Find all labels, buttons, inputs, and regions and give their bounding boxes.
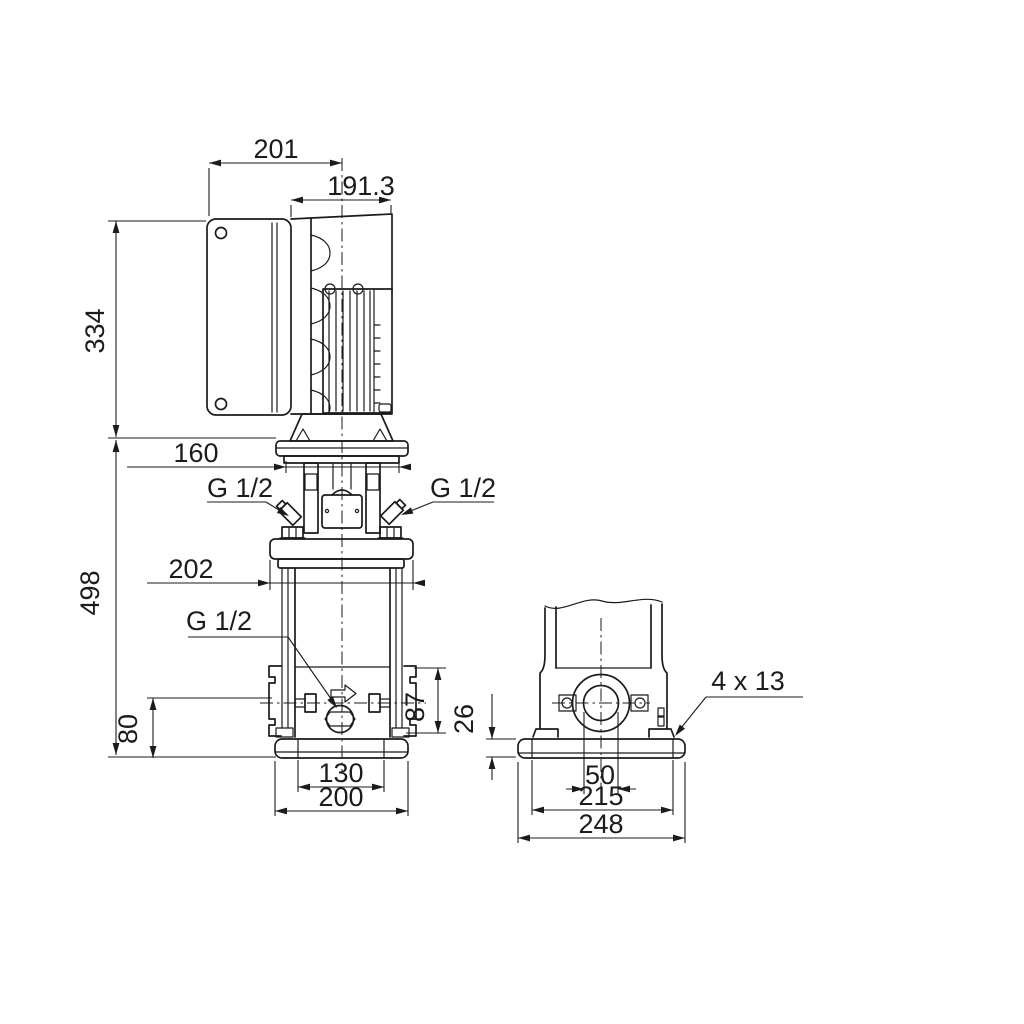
adapter-rib bbox=[373, 429, 387, 441]
motor bbox=[207, 214, 392, 415]
side-view-body bbox=[533, 599, 674, 737]
label-g12-top-right: G 1/2 bbox=[400, 473, 496, 518]
control-box-screw-top bbox=[216, 228, 227, 239]
head-lip bbox=[278, 559, 404, 568]
motor-control-box bbox=[207, 219, 291, 415]
break-line bbox=[545, 599, 662, 608]
drain-plug-hex bbox=[325, 712, 355, 726]
adapter-rib bbox=[296, 429, 310, 441]
dim-200-label: 200 bbox=[318, 782, 363, 812]
dim-201-label: 201 bbox=[253, 134, 298, 164]
dim-87-label: 87 bbox=[400, 692, 430, 722]
coupling-section bbox=[275, 463, 407, 538]
g12-top-left-label: G 1/2 bbox=[207, 473, 273, 503]
cooling-scallop bbox=[311, 235, 330, 271]
dim-202-label: 202 bbox=[168, 554, 213, 584]
dim-80-label: 80 bbox=[113, 714, 143, 744]
flow-direction-arrow bbox=[331, 685, 356, 702]
dim-334: 334 bbox=[80, 221, 276, 438]
drain-plug bbox=[327, 706, 354, 733]
drawing-canvas: 201 191.3 334 498 bbox=[0, 0, 1024, 1024]
gauge-plug-right bbox=[381, 498, 407, 524]
dim-87: 87 bbox=[400, 668, 446, 733]
dimensions: 201 191.3 334 498 bbox=[75, 134, 803, 843]
head-nut-right bbox=[380, 527, 401, 538]
dim-26: 26 bbox=[449, 694, 516, 780]
control-box-screw-bottom bbox=[216, 399, 227, 410]
heatsink-fins bbox=[329, 291, 370, 411]
heatsink-cap-ticks bbox=[374, 325, 380, 403]
foot-left bbox=[533, 729, 558, 737]
dim-334-label: 334 bbox=[80, 308, 110, 353]
heatsink-tab bbox=[379, 404, 391, 412]
dim-160-label: 160 bbox=[173, 438, 218, 468]
g12-top-right-label: G 1/2 bbox=[430, 473, 496, 503]
dim-26-label: 26 bbox=[449, 704, 479, 734]
head-nut-left bbox=[282, 527, 303, 538]
foot-right bbox=[649, 729, 674, 737]
dim-248-label: 248 bbox=[578, 809, 623, 839]
dim-215-label: 215 bbox=[578, 781, 623, 811]
column-left-outer bbox=[540, 608, 545, 729]
dim-80: 80 bbox=[113, 698, 272, 758]
label-g12-top-left: G 1/2 bbox=[207, 473, 291, 519]
bolt-holes-label: 4 x 13 bbox=[711, 666, 785, 696]
dim-191-3: 191.3 bbox=[291, 171, 395, 217]
label-bolt-holes: 4 x 13 bbox=[672, 666, 803, 738]
side-clip bbox=[658, 708, 664, 716]
dim-498-label: 498 bbox=[75, 570, 105, 615]
suction-flange bbox=[269, 666, 281, 736]
dim-201: 201 bbox=[209, 134, 342, 216]
g12-drain-label: G 1/2 bbox=[186, 606, 252, 636]
cooling-scallop bbox=[311, 339, 330, 375]
technical-drawing: 201 191.3 334 498 bbox=[0, 0, 1024, 1024]
cooling-scallop bbox=[311, 390, 330, 414]
dim-191-3-label: 191.3 bbox=[327, 171, 395, 201]
